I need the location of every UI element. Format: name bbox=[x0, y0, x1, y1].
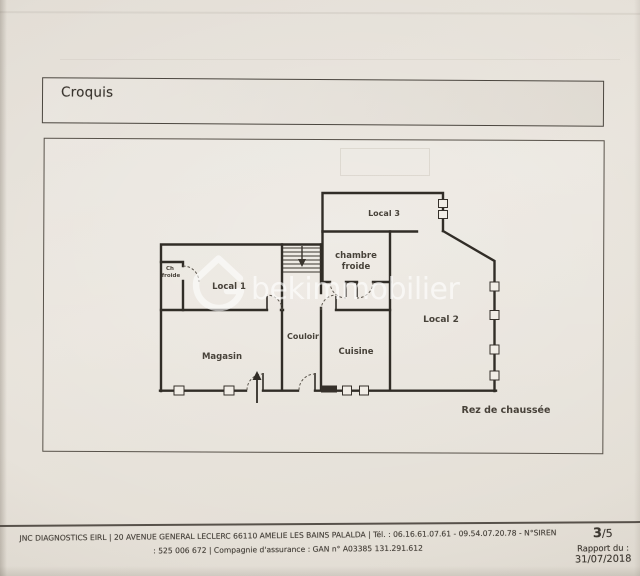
room-label-closet-1: Ch bbox=[166, 266, 174, 272]
room-label-closet-2: froide bbox=[162, 273, 181, 279]
floor-plan-drawing: bekimmobilier Local 3 chambre froide Loc… bbox=[0, 0, 640, 576]
room-label-chambre-froide-1: chambre bbox=[335, 251, 377, 261]
footer-report-info: 3/5 Rapport du : 31/07/2018 bbox=[569, 525, 638, 565]
watermark-text: bekimmobilier bbox=[251, 272, 461, 307]
page-number: 3/5 bbox=[569, 525, 637, 541]
room-label-local1: Local 1 bbox=[212, 282, 246, 292]
report-date-label: Rapport du : bbox=[569, 542, 637, 553]
room-label-couloir: Couloir bbox=[287, 332, 319, 341]
floor-level-label: Rez de chaussée bbox=[462, 405, 551, 416]
stairs-direction-arrow-icon bbox=[298, 259, 306, 267]
scanned-report-page: Croquis bbox=[0, 0, 640, 576]
room-label-chambre-froide-2: froide bbox=[342, 262, 371, 272]
stairs bbox=[283, 246, 321, 272]
room-label-magasin: Magasin bbox=[202, 352, 242, 362]
page-current: 3 bbox=[593, 526, 602, 541]
room-label-local3: Local 3 bbox=[368, 209, 400, 218]
entrance-arrow-icon bbox=[253, 371, 262, 403]
page-total: /5 bbox=[602, 527, 613, 540]
room-label-local2: Local 2 bbox=[423, 315, 459, 325]
room-label-cuisine: Cuisine bbox=[339, 347, 374, 357]
report-date-value: 31/07/2018 bbox=[569, 553, 637, 565]
door-threshold bbox=[321, 386, 337, 393]
